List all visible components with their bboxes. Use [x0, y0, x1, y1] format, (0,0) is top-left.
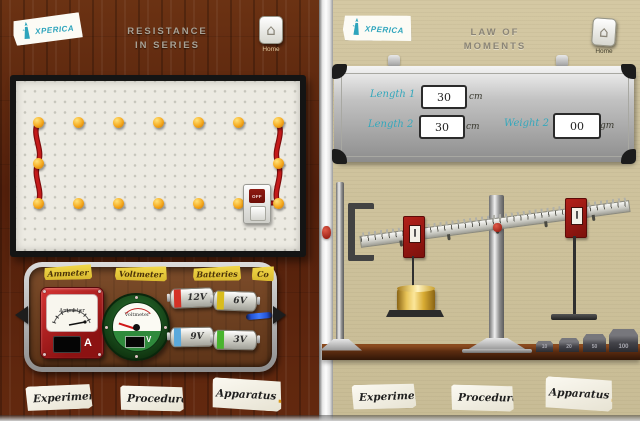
tray-scroll-left-icon[interactable] — [15, 306, 28, 324]
weight-value-label: 20 — [566, 344, 572, 350]
battery-terminal — [167, 332, 170, 340]
battery-stripe — [174, 328, 181, 346]
screw-icon — [135, 296, 138, 299]
battery-12v[interactable]: 12V — [170, 287, 215, 309]
weight-value-label: 100 — [618, 344, 628, 350]
battery-voltage-label: 6V — [226, 292, 255, 311]
statue-icon — [351, 18, 363, 37]
battery-terminal — [257, 335, 260, 343]
home-button[interactable]: ⌂ — [259, 16, 283, 44]
weight-value-label: 10 — [542, 344, 548, 350]
breadboard: OFF — [10, 75, 306, 257]
weight2-input[interactable] — [553, 113, 601, 139]
ammeter-needle — [69, 322, 85, 325]
slotted-weight-100[interactable]: 100 — [609, 329, 638, 352]
procedure-button-label: Procedure — [458, 392, 519, 405]
voltmeter-display — [125, 336, 145, 348]
ruler-marker — [544, 221, 548, 227]
right-stand-base — [551, 314, 597, 320]
home-icon: ⌂ — [266, 23, 276, 38]
screw-icon — [105, 326, 108, 329]
voltmeter-dial: Voltmeter V — [112, 302, 162, 352]
pivot-knob[interactable] — [493, 223, 502, 232]
battery-voltage-label: 3V — [226, 331, 254, 349]
length2-input[interactable] — [419, 115, 465, 139]
weight2-label: Weight 2 — [504, 118, 549, 129]
length1-label: Length 1 — [370, 89, 415, 100]
experiment-button[interactable]: Experiment — [25, 383, 92, 411]
page-title-moments: LAW OF MOMENTS — [420, 26, 570, 54]
statue-icon — [20, 21, 33, 40]
screw-icon — [135, 355, 138, 358]
fulcrum-stand-foot — [462, 349, 532, 353]
stand-adjust-knob[interactable] — [322, 226, 331, 239]
battery-voltage-label: 12V — [183, 288, 212, 307]
hanger-window — [571, 207, 583, 225]
binding-post-peg[interactable] — [153, 198, 164, 209]
length1-unit: cm — [469, 92, 483, 102]
breadboard-surface[interactable]: OFF — [16, 81, 300, 251]
xperica-app-screenshot: xperica RESISTANCE IN SERIES ⌂ Home — [0, 0, 640, 421]
apparatus-button[interactable]: Apparatus — [544, 376, 614, 412]
ammeter-instrument[interactable]: Ammeter A — [40, 287, 104, 359]
slotted-weight-20[interactable]: 20 — [559, 338, 579, 352]
battery-terminal — [210, 295, 213, 303]
battery-terminal — [257, 297, 260, 305]
binding-post-peg[interactable] — [233, 117, 244, 128]
procedure-button-label: Procedure — [127, 392, 188, 405]
binding-post-peg[interactable] — [33, 198, 44, 209]
weight-value-label: 50 — [592, 344, 598, 350]
binding-post-peg[interactable] — [273, 117, 284, 128]
right-weight-hanger[interactable] — [565, 198, 587, 238]
ammeter-dial: Ammeter — [46, 294, 98, 332]
xperica-logo: xperica — [342, 12, 412, 44]
battery-9v[interactable]: 9V — [170, 327, 214, 348]
battery-6v[interactable]: 6V — [213, 290, 258, 312]
apparatus-button-label: Apparatus — [549, 386, 610, 401]
title-line-2: MOMENTS — [420, 40, 570, 54]
tray-scroll-right-icon[interactable] — [273, 306, 286, 324]
battery-3v[interactable]: 3V — [213, 330, 257, 351]
title-line-2: IN SERIES — [95, 39, 240, 53]
title-line-1: LAW OF — [420, 26, 570, 40]
home-button-label: Home — [584, 48, 624, 55]
switch-rocker[interactable] — [250, 206, 266, 221]
binding-post-peg[interactable] — [193, 198, 204, 209]
right-stand-rod — [573, 236, 576, 315]
switch-state-label: OFF — [249, 189, 265, 203]
procedure-button[interactable]: Procedure — [120, 385, 184, 411]
slotted-weight-50[interactable]: 50 — [583, 334, 606, 352]
voltmeter-unit: V — [146, 335, 151, 344]
binding-post-peg[interactable] — [33, 158, 44, 169]
weight-platform — [386, 310, 444, 317]
procedure-button[interactable]: Procedure — [451, 384, 514, 411]
screw-icon — [98, 290, 101, 293]
voltmeter-pivot — [133, 324, 140, 331]
binding-post-peg[interactable] — [273, 198, 284, 209]
battery-terminal — [167, 294, 170, 302]
ruler-marker — [592, 215, 596, 221]
screw-icon — [164, 326, 167, 329]
left-weight-hanger[interactable] — [403, 216, 425, 258]
logo-text: xperica — [365, 20, 405, 36]
binding-post-peg[interactable] — [73, 198, 84, 209]
battery-terminal — [210, 335, 213, 343]
ammeter-unit: A — [84, 337, 92, 349]
home-button[interactable]: ⌂ — [591, 17, 617, 47]
home-button-label: Home — [251, 46, 291, 53]
brass-weight[interactable] — [397, 288, 435, 312]
binding-post-peg[interactable] — [113, 117, 124, 128]
weight2-unit: gm — [600, 121, 614, 131]
length2-unit: cm — [466, 122, 480, 132]
tray-label-connectors-partial: Co — [252, 266, 275, 282]
ammeter-dial-label: Ammeter — [47, 308, 97, 314]
page-title-resistance: RESISTANCE IN SERIES — [95, 25, 240, 53]
binding-post-peg[interactable] — [273, 158, 284, 169]
binding-post-peg[interactable] — [73, 117, 84, 128]
screw-icon — [43, 290, 46, 293]
length2-label: Length 2 — [368, 119, 413, 130]
battery-stripe — [174, 289, 182, 307]
apparatus-button-label: Apparatus — [216, 387, 277, 402]
bottom-edge-bar — [0, 415, 640, 421]
left-stand-pole — [336, 182, 344, 342]
battery-stripe — [217, 291, 225, 309]
ammeter-display — [53, 336, 81, 353]
battery-voltage-label: 9V — [183, 328, 211, 346]
circuit-switch[interactable]: OFF — [243, 184, 271, 224]
length1-input[interactable] — [421, 85, 467, 109]
binding-post-peg[interactable] — [113, 198, 124, 209]
binding-post-peg[interactable] — [193, 117, 204, 128]
battery-stripe — [217, 331, 224, 349]
title-line-1: RESISTANCE — [95, 25, 240, 39]
slotted-weight-10[interactable]: 10 — [536, 341, 553, 352]
experiment-button[interactable]: Experiment — [352, 383, 417, 410]
tray-label-voltmeter: Voltmeter — [115, 266, 167, 282]
binding-post-peg[interactable] — [153, 117, 164, 128]
circuit-wires — [16, 81, 300, 251]
logo-text: xperica — [34, 20, 74, 37]
apparatus-button[interactable]: Apparatus — [211, 377, 283, 412]
binding-post-peg[interactable] — [33, 117, 44, 128]
hanger-window — [409, 225, 421, 243]
screw-icon — [98, 353, 101, 356]
home-icon: ⌂ — [599, 24, 610, 40]
voltmeter-instrument[interactable]: Voltmeter V — [102, 293, 170, 361]
screw-icon — [43, 353, 46, 356]
